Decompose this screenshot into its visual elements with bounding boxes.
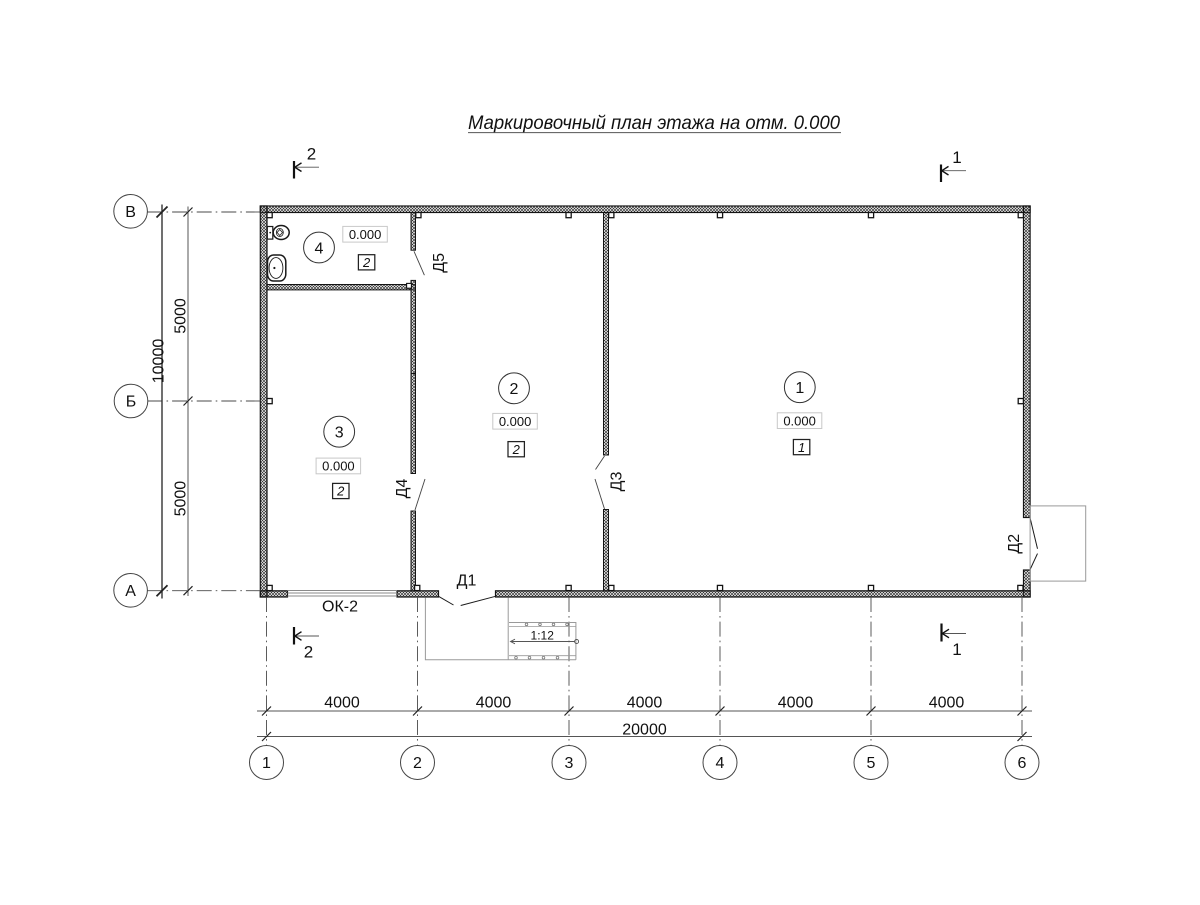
svg-text:4: 4 bbox=[315, 240, 324, 257]
svg-text:ОК-2: ОК-2 bbox=[322, 599, 358, 616]
svg-text:4000: 4000 bbox=[778, 695, 814, 712]
svg-text:Д3: Д3 bbox=[609, 472, 626, 492]
svg-text:3: 3 bbox=[335, 425, 344, 442]
svg-text:5000: 5000 bbox=[173, 481, 190, 517]
svg-text:А: А bbox=[125, 583, 136, 600]
svg-text:Д4: Д4 bbox=[394, 479, 411, 499]
svg-text:Д5: Д5 bbox=[431, 253, 448, 273]
svg-text:2: 2 bbox=[362, 255, 371, 270]
svg-text:10000: 10000 bbox=[151, 339, 168, 384]
svg-text:3: 3 bbox=[565, 755, 574, 772]
svg-text:Маркировочный план этажа на от: Маркировочный план этажа на отм. 0.000 bbox=[468, 113, 840, 134]
svg-text:0.000: 0.000 bbox=[499, 414, 532, 429]
svg-text:1: 1 bbox=[952, 148, 961, 167]
svg-text:4000: 4000 bbox=[476, 695, 512, 712]
svg-text:2: 2 bbox=[336, 484, 345, 499]
svg-text:2: 2 bbox=[413, 755, 422, 772]
svg-text:1: 1 bbox=[795, 380, 804, 397]
svg-text:В: В bbox=[125, 204, 136, 221]
svg-text:2: 2 bbox=[510, 381, 519, 398]
svg-text:0.000: 0.000 bbox=[322, 459, 355, 474]
svg-text:4000: 4000 bbox=[929, 695, 965, 712]
svg-text:5: 5 bbox=[867, 755, 876, 772]
svg-text:Д2: Д2 bbox=[1006, 534, 1023, 554]
svg-text:2: 2 bbox=[307, 145, 316, 164]
svg-text:2: 2 bbox=[512, 442, 521, 457]
svg-text:4000: 4000 bbox=[324, 695, 360, 712]
svg-text:0.000: 0.000 bbox=[349, 227, 382, 242]
svg-text:1: 1 bbox=[262, 755, 271, 772]
svg-text:6: 6 bbox=[1018, 755, 1027, 772]
svg-text:5000: 5000 bbox=[173, 298, 190, 334]
svg-text:0.000: 0.000 bbox=[783, 413, 816, 428]
svg-text:4: 4 bbox=[716, 755, 725, 772]
svg-text:1: 1 bbox=[798, 440, 805, 455]
svg-text:Б: Б bbox=[126, 394, 137, 411]
svg-text:1: 1 bbox=[952, 640, 961, 659]
svg-text:4000: 4000 bbox=[627, 695, 663, 712]
svg-text:20000: 20000 bbox=[622, 722, 667, 739]
svg-text:1:12: 1:12 bbox=[531, 629, 555, 643]
svg-text:2: 2 bbox=[304, 643, 313, 662]
svg-text:Д1: Д1 bbox=[457, 573, 477, 590]
